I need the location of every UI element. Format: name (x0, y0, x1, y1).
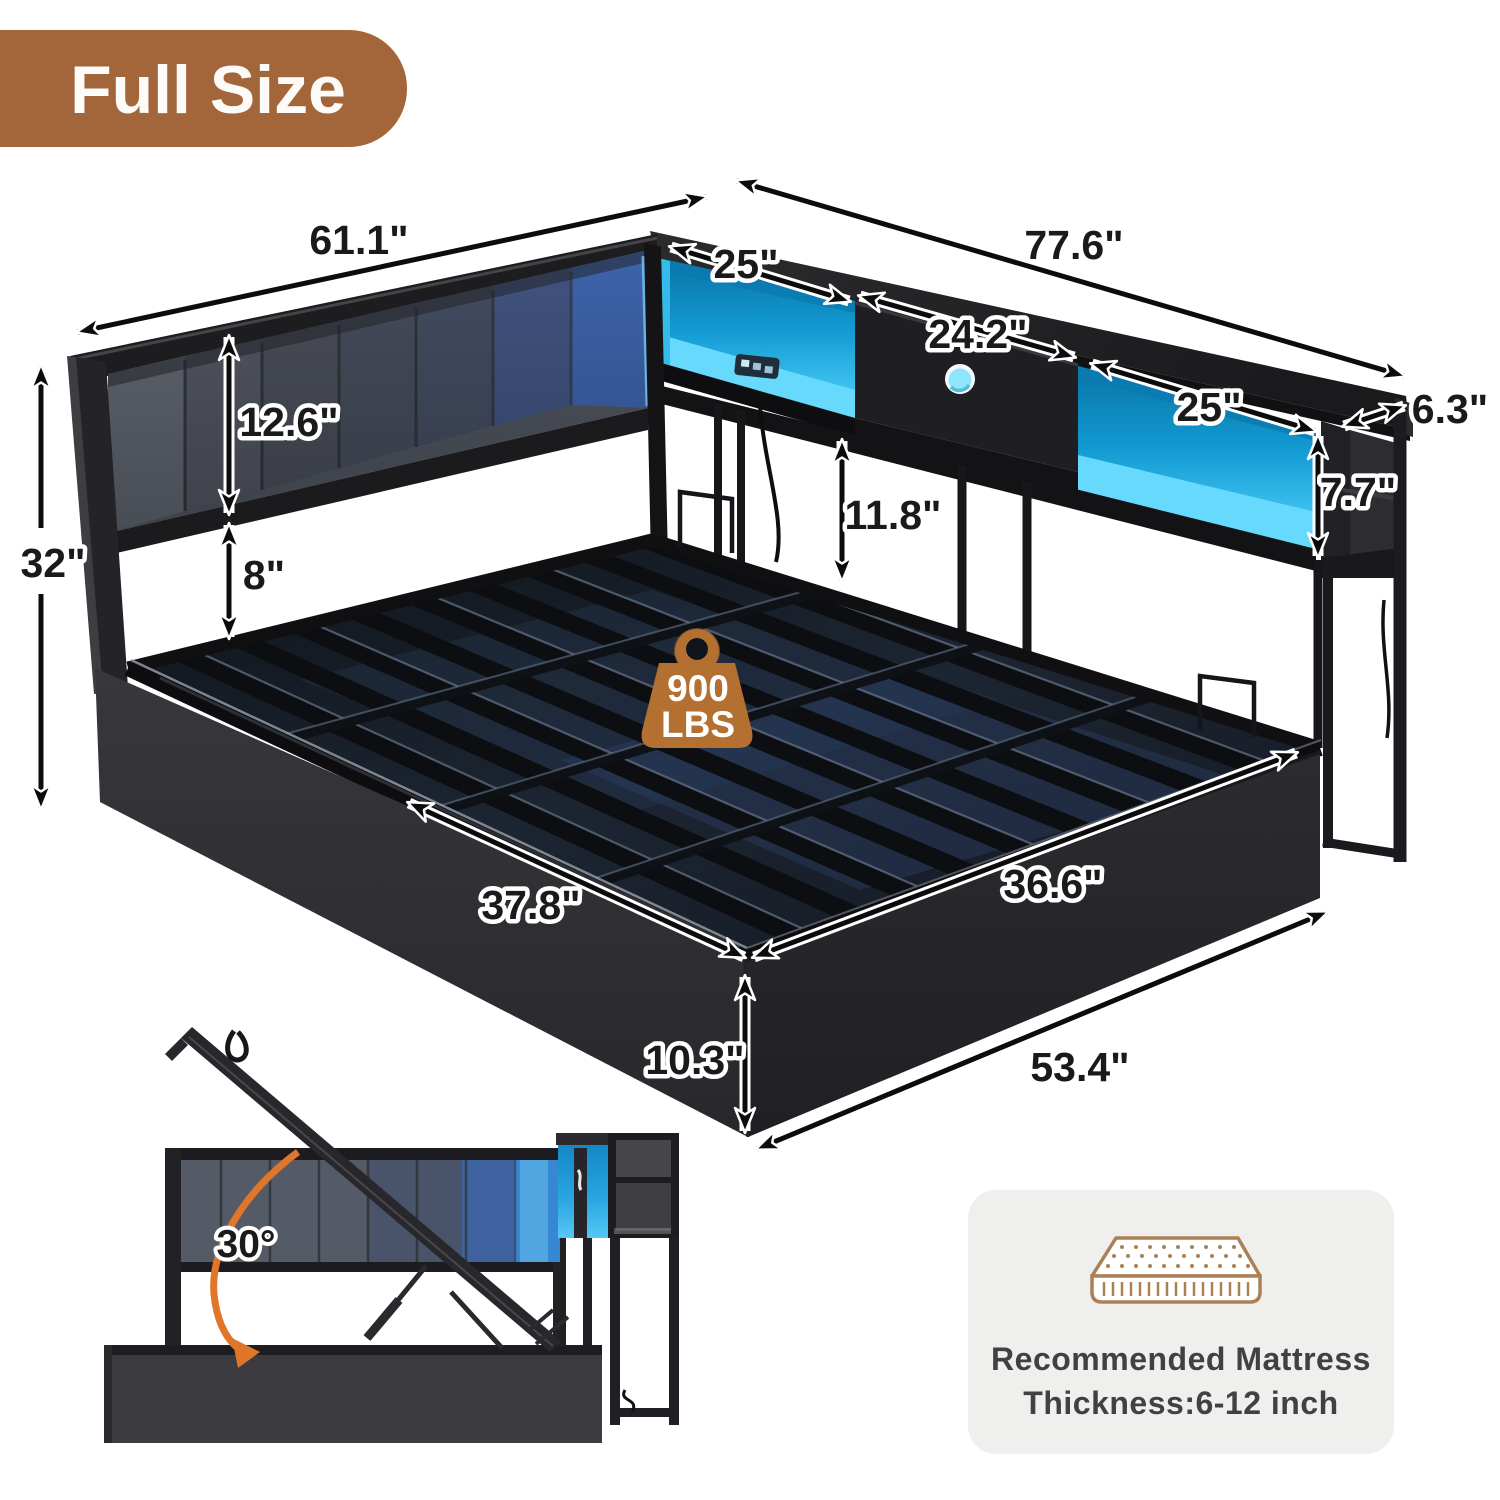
svg-text:LBS: LBS (661, 704, 735, 745)
svg-text:32": 32" (20, 540, 85, 586)
svg-text:24.2": 24.2" (928, 311, 1027, 357)
svg-text:Thickness:6-12 inch: Thickness:6-12 inch (1023, 1385, 1338, 1421)
svg-text:900: 900 (667, 668, 729, 709)
svg-text:61.1": 61.1" (309, 217, 408, 263)
svg-text:11.8": 11.8" (845, 492, 942, 538)
svg-text:Recommended Mattress: Recommended Mattress (991, 1341, 1371, 1377)
svg-text:Full Size: Full Size (70, 52, 346, 128)
svg-text:53.4": 53.4" (1030, 1044, 1129, 1090)
svg-text:10.3": 10.3" (645, 1037, 744, 1083)
svg-text:25": 25" (713, 241, 778, 287)
svg-text:12.6": 12.6" (239, 399, 338, 445)
svg-text:6.3": 6.3" (1412, 386, 1488, 432)
svg-text:25": 25" (1176, 384, 1241, 430)
svg-text:8": 8" (243, 552, 285, 598)
svg-text:36.6": 36.6" (1003, 861, 1102, 907)
svg-text:77.6": 77.6" (1024, 222, 1123, 268)
svg-text:37.8": 37.8" (481, 882, 580, 928)
svg-text:30°: 30° (217, 1223, 276, 1266)
svg-text:7.7": 7.7" (1320, 469, 1396, 515)
